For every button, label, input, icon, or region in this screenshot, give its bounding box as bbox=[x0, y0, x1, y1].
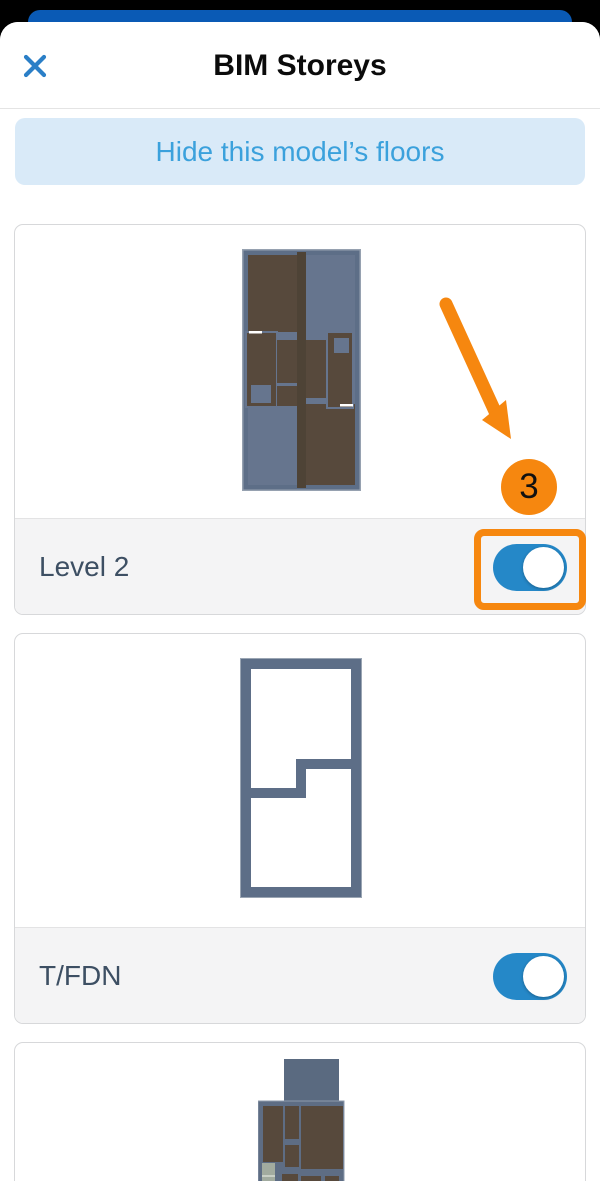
floor-plan-tfdn[interactable] bbox=[15, 634, 585, 929]
storey-name: T/FDN bbox=[39, 928, 121, 1024]
floor-plan-thumbnail bbox=[258, 1059, 358, 1181]
toggle-knob bbox=[523, 956, 564, 997]
close-icon bbox=[23, 54, 47, 81]
page-title: BIM Storeys bbox=[0, 22, 600, 109]
floor-plan-level-2[interactable]: 3 bbox=[15, 225, 585, 520]
sheet-header: BIM Storeys bbox=[0, 22, 600, 109]
toggle-knob bbox=[523, 547, 564, 588]
storey-card-partial bbox=[14, 1042, 586, 1181]
storey-card-tfdn: T/FDN bbox=[14, 633, 586, 1024]
storey-visibility-toggle[interactable] bbox=[493, 953, 567, 1000]
step-number-badge: 3 bbox=[501, 459, 557, 515]
storey-visibility-toggle[interactable] bbox=[493, 544, 567, 591]
floor-plan-thumbnail bbox=[240, 658, 362, 898]
floor-plan-thumbnail bbox=[242, 249, 361, 491]
storey-card-level-2: 3 Level 2 bbox=[14, 224, 586, 615]
hide-model-floors-button[interactable]: Hide this model’s floors bbox=[15, 118, 585, 185]
close-button[interactable] bbox=[18, 50, 52, 84]
floor-plan-partial[interactable] bbox=[15, 1043, 585, 1181]
storey-name: Level 2 bbox=[39, 519, 129, 615]
bim-storeys-sheet: BIM Storeys Hide this model’s floors bbox=[0, 22, 600, 1181]
